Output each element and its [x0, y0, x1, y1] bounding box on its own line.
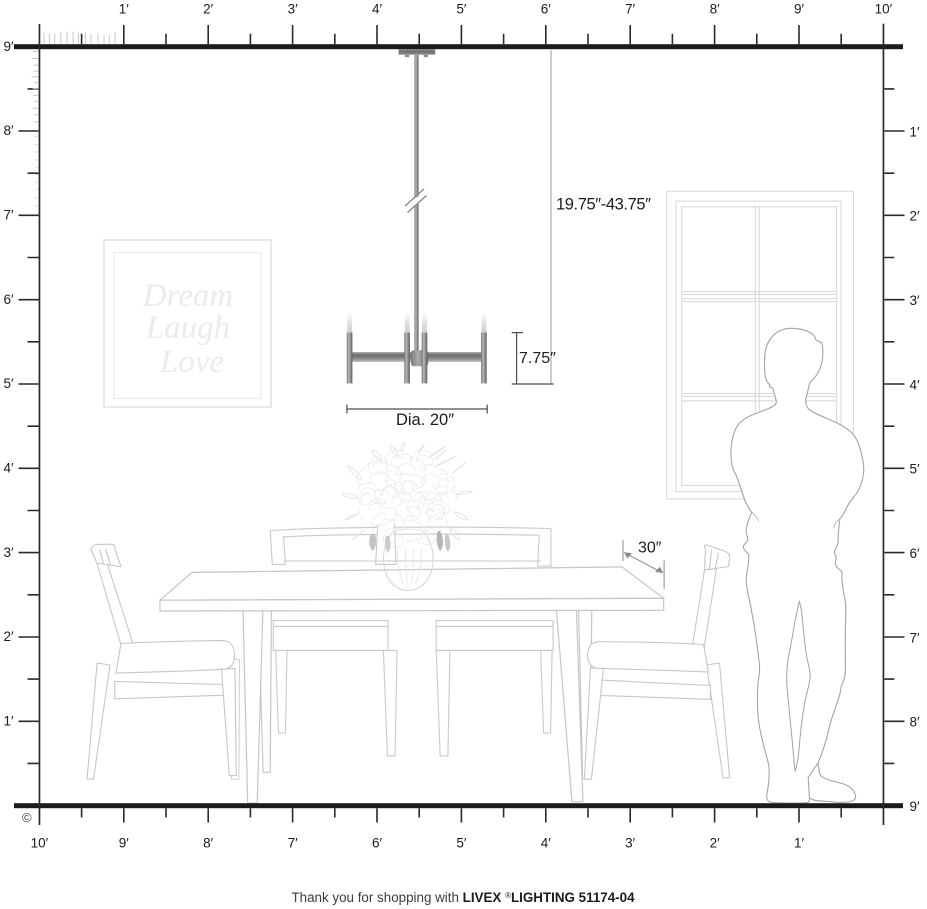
svg-text:8′: 8′	[910, 715, 921, 730]
svg-text:1′: 1′	[4, 714, 15, 729]
svg-text:1′: 1′	[119, 1, 130, 16]
svg-text:1′: 1′	[910, 124, 921, 139]
svg-text:2′: 2′	[910, 209, 921, 224]
svg-text:9′: 9′	[910, 799, 921, 814]
svg-text:6′: 6′	[372, 835, 383, 850]
svg-text:4′: 4′	[910, 377, 921, 392]
svg-text:Love: Love	[159, 344, 224, 380]
svg-text:©: ©	[22, 810, 32, 825]
svg-text:8′: 8′	[710, 1, 721, 16]
svg-text:4′: 4′	[541, 835, 552, 850]
svg-text:7′: 7′	[910, 630, 921, 645]
svg-text:7′: 7′	[288, 835, 299, 850]
svg-text:3′: 3′	[910, 293, 921, 308]
svg-text:Laugh: Laugh	[145, 310, 230, 346]
svg-text:19.75″-43.75″: 19.75″-43.75″	[556, 196, 651, 214]
svg-text:4′: 4′	[4, 461, 15, 476]
svg-text:7.75″: 7.75″	[519, 350, 556, 367]
svg-text:2′: 2′	[4, 629, 15, 644]
svg-text:4′: 4′	[372, 1, 383, 16]
svg-text:Thank you for shopping with LI: Thank you for shopping with LIVEX ®LIGHT…	[291, 890, 635, 905]
svg-text:5′: 5′	[910, 462, 921, 477]
svg-text:10′: 10′	[31, 835, 49, 850]
svg-text:7′: 7′	[625, 1, 636, 16]
svg-text:30″: 30″	[638, 540, 662, 557]
svg-text:2′: 2′	[710, 835, 721, 850]
svg-text:6′: 6′	[541, 1, 552, 16]
svg-text:2′: 2′	[203, 1, 214, 16]
svg-text:8′: 8′	[203, 835, 214, 850]
svg-text:10′: 10′	[875, 1, 893, 16]
svg-text:7′: 7′	[4, 208, 15, 223]
svg-text:5′: 5′	[4, 376, 15, 391]
svg-text:3′: 3′	[288, 1, 299, 16]
svg-text:Dia. 20″: Dia. 20″	[396, 411, 454, 429]
svg-text:9′: 9′	[119, 835, 130, 850]
svg-text:3′: 3′	[625, 835, 636, 850]
svg-text:6′: 6′	[910, 546, 921, 561]
svg-text:8′: 8′	[4, 123, 15, 138]
svg-text:Dream: Dream	[142, 278, 233, 314]
svg-text:9′: 9′	[4, 39, 15, 54]
svg-text:9′: 9′	[794, 1, 805, 16]
svg-text:6′: 6′	[4, 292, 15, 307]
svg-text:5′: 5′	[456, 1, 467, 16]
svg-text:3′: 3′	[4, 545, 15, 560]
svg-text:5′: 5′	[456, 835, 467, 850]
svg-text:1′: 1′	[794, 835, 805, 850]
